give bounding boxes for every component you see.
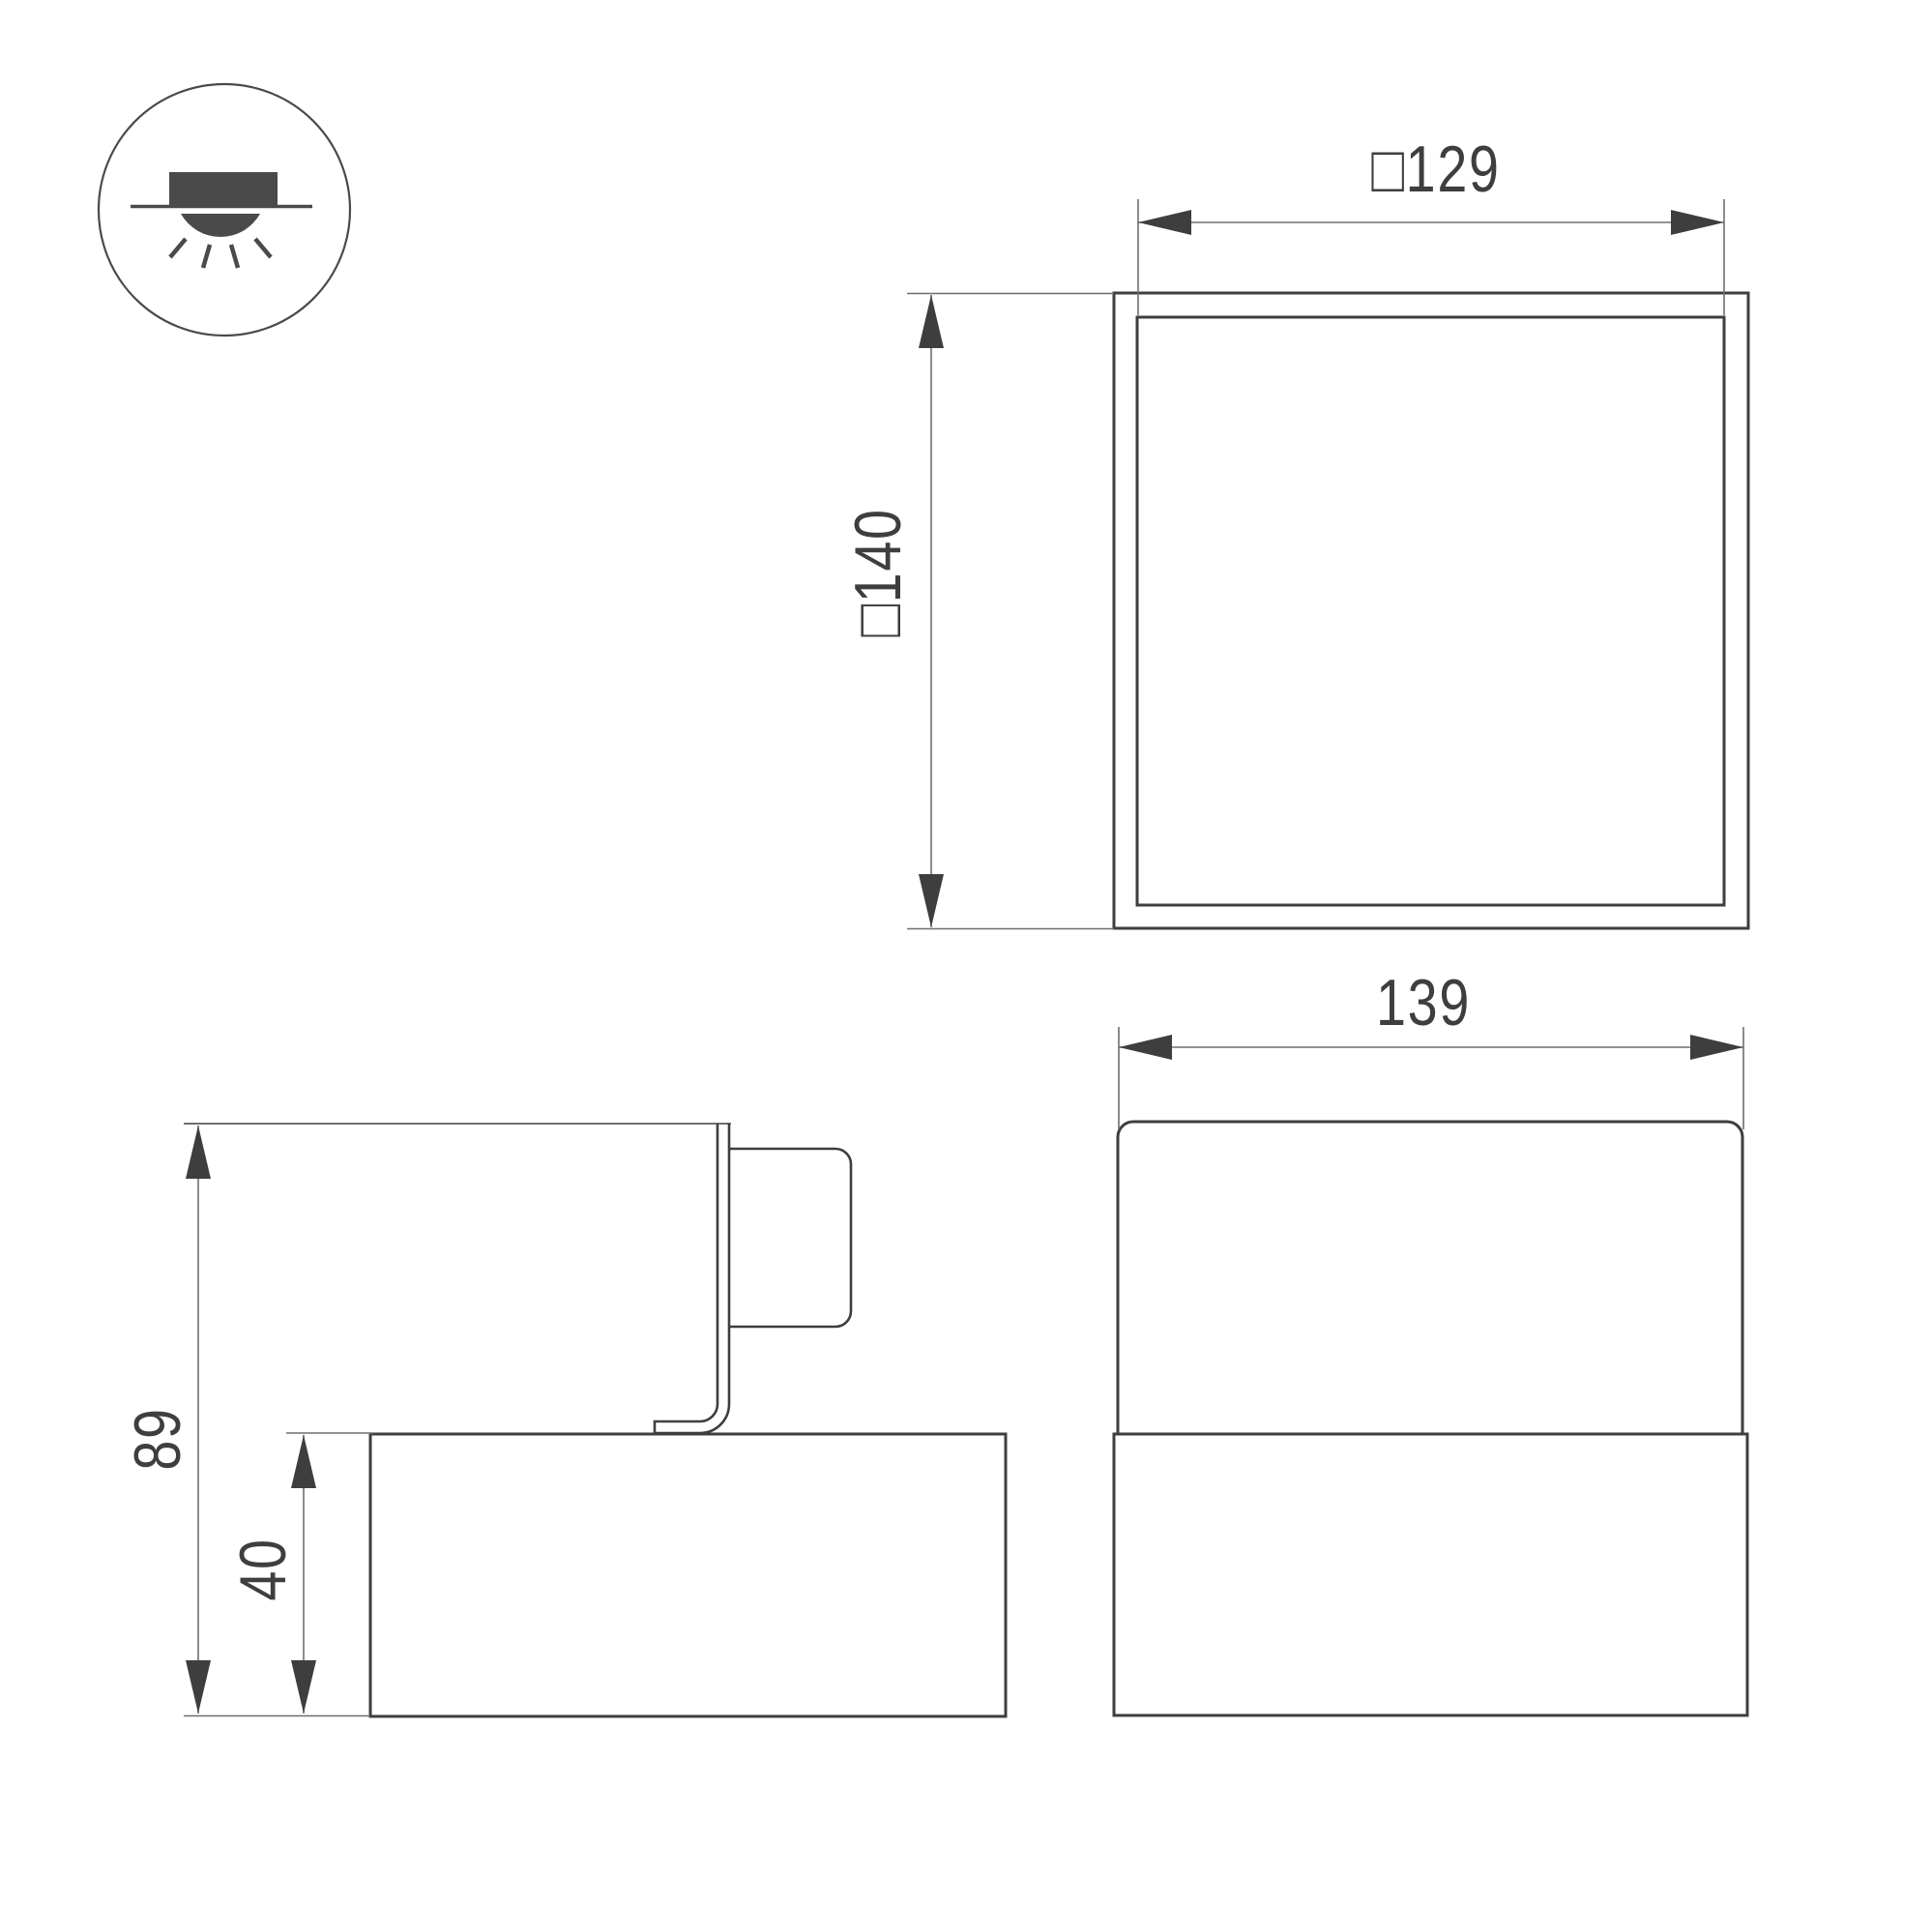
technical-drawing-page: □129 □140 139 89 40 [0,0,1932,1932]
dimension-89 [184,1126,370,1716]
dimension-label-inner-width: □129 [1371,132,1500,207]
arrowhead-down-icon [186,1660,211,1713]
dimension-label-front-width: 139 [1376,965,1471,1040]
lamp-dome-glyph [181,214,260,237]
side-view [184,1124,1006,1716]
arrowhead-up-icon [291,1435,316,1488]
arrowhead-right-icon [1671,210,1724,235]
side-view-mounting-bracket [655,1124,729,1433]
mounting-type-icon [99,84,350,336]
arrowhead-left-icon [1119,1035,1172,1060]
arrowhead-up-icon [919,295,944,348]
fixture-body-glyph [169,172,278,205]
light-rays-icon [170,239,271,268]
top-view-outer-square [1114,293,1748,928]
dimension-label-outer-height: □140 [840,508,916,636]
arrowhead-left-icon [1138,210,1191,235]
dimension-140 [907,294,1114,929]
arrowhead-down-icon [919,874,944,927]
dimension-139 [1119,1027,1743,1129]
icon-circle [99,84,350,336]
top-view [1114,293,1748,928]
dimension-label-body-height: 40 [225,1537,301,1600]
arrowhead-down-icon [291,1660,316,1713]
arrowhead-up-icon [186,1126,211,1179]
side-view-clip-box [729,1149,851,1327]
top-view-inner-square [1137,317,1724,905]
front-view-lower-body [1114,1434,1747,1715]
arrowhead-right-icon [1690,1035,1743,1060]
front-view [1114,1122,1747,1715]
dimension-129 [1138,199,1724,315]
side-view-lower-body [370,1434,1006,1716]
technical-drawing-canvas [0,0,1932,1932]
front-view-upper-body [1118,1122,1742,1434]
dimension-label-total-height: 89 [120,1407,195,1470]
